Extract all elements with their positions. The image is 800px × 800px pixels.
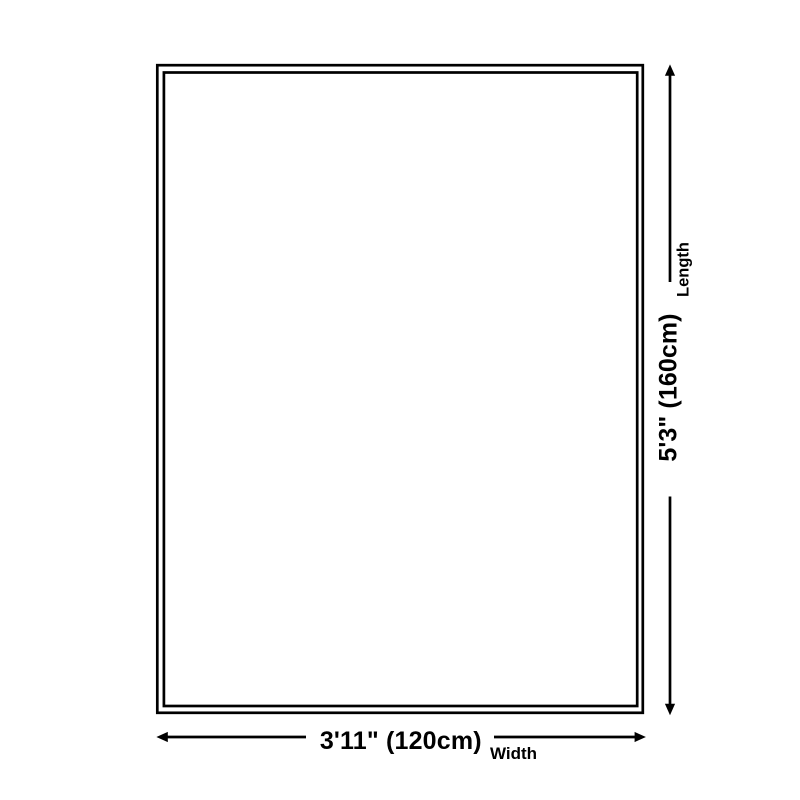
svg-text:Width: Width <box>490 744 537 763</box>
svg-text:5'3" (160cm): 5'3" (160cm) <box>655 313 683 461</box>
svg-text:Length: Length <box>675 242 693 297</box>
svg-text:3'11" (120cm): 3'11" (120cm) <box>320 727 482 755</box>
